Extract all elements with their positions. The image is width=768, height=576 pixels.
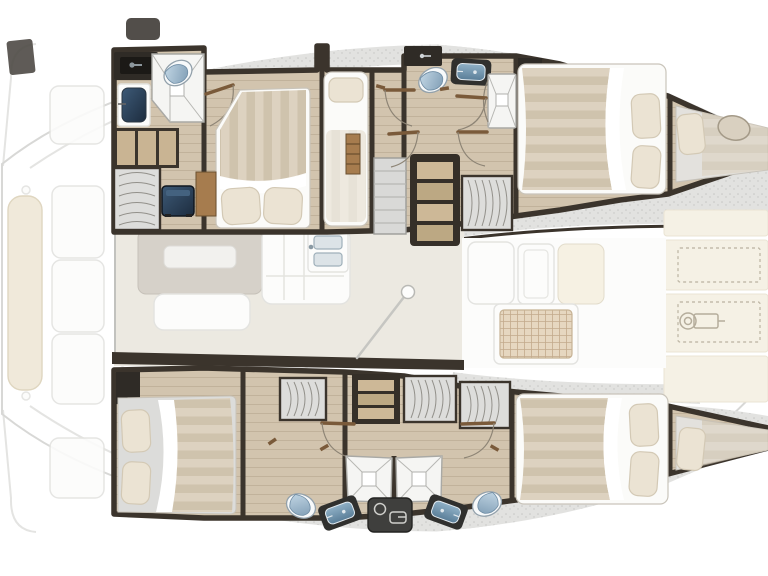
wardrobe xyxy=(462,176,512,230)
door-leaf xyxy=(322,423,354,424)
cockpit-seat xyxy=(52,260,104,332)
pillow xyxy=(676,427,706,471)
port-forepeak xyxy=(676,106,768,182)
chart-seat-cushion xyxy=(500,310,572,358)
wardrobe xyxy=(280,378,326,420)
washbasin xyxy=(450,58,491,86)
cleat xyxy=(22,392,30,400)
salon-bench xyxy=(154,294,250,330)
pillow xyxy=(221,187,261,226)
duvet xyxy=(170,398,234,512)
wardrobe xyxy=(114,168,160,230)
systems-console xyxy=(368,498,412,532)
pillow xyxy=(263,187,303,225)
pillow xyxy=(121,409,151,452)
door-leaf xyxy=(462,423,494,424)
single-berth-cabin xyxy=(324,72,368,226)
cockpit-bench-cushion xyxy=(8,196,42,390)
cockpit-seat xyxy=(52,334,104,404)
locker-panel xyxy=(664,356,768,402)
mast-step xyxy=(402,286,415,299)
nightstand xyxy=(196,172,216,216)
pillow xyxy=(329,78,363,102)
pillow xyxy=(628,451,659,497)
salon-table-tray xyxy=(164,246,236,268)
duvet xyxy=(522,68,612,190)
cockpit-seat xyxy=(50,86,104,144)
pillow xyxy=(631,145,662,189)
bow-lockers xyxy=(664,210,768,402)
starboard-companionway xyxy=(280,374,510,428)
storage-steps xyxy=(114,128,179,168)
berth-ladder xyxy=(346,134,360,174)
galley xyxy=(262,228,350,304)
pillow xyxy=(121,461,151,504)
door-leaf xyxy=(457,96,486,98)
floor-plan-canvas xyxy=(0,0,768,576)
cockpit-seat xyxy=(50,438,104,498)
appliance xyxy=(162,186,194,217)
galley-sink xyxy=(308,230,348,272)
salon xyxy=(112,222,666,370)
pillow xyxy=(631,93,661,138)
shower-stall xyxy=(346,456,392,502)
washbasin xyxy=(122,88,146,122)
door-leaf xyxy=(389,132,418,134)
pillow xyxy=(629,403,659,446)
starboard-fwd-cabin xyxy=(516,394,668,504)
wardrobe xyxy=(460,382,510,428)
cleat xyxy=(22,186,30,194)
helm-module xyxy=(6,39,35,76)
wardrobe xyxy=(404,376,456,422)
fwd-seat-cream xyxy=(558,244,604,304)
yacht-floor-plan xyxy=(0,0,768,576)
deck-box xyxy=(126,18,160,40)
duvet xyxy=(520,398,610,500)
stairs-wood xyxy=(410,154,460,246)
stairs-wood xyxy=(352,374,400,424)
pillow xyxy=(676,113,706,155)
cockpit-seat xyxy=(52,186,104,258)
port-fwd-cabin xyxy=(518,58,666,194)
fwd-seat xyxy=(468,242,514,304)
shower-stall xyxy=(484,74,517,128)
locker-panel xyxy=(664,210,768,236)
galley-faucet-icon xyxy=(309,245,314,250)
